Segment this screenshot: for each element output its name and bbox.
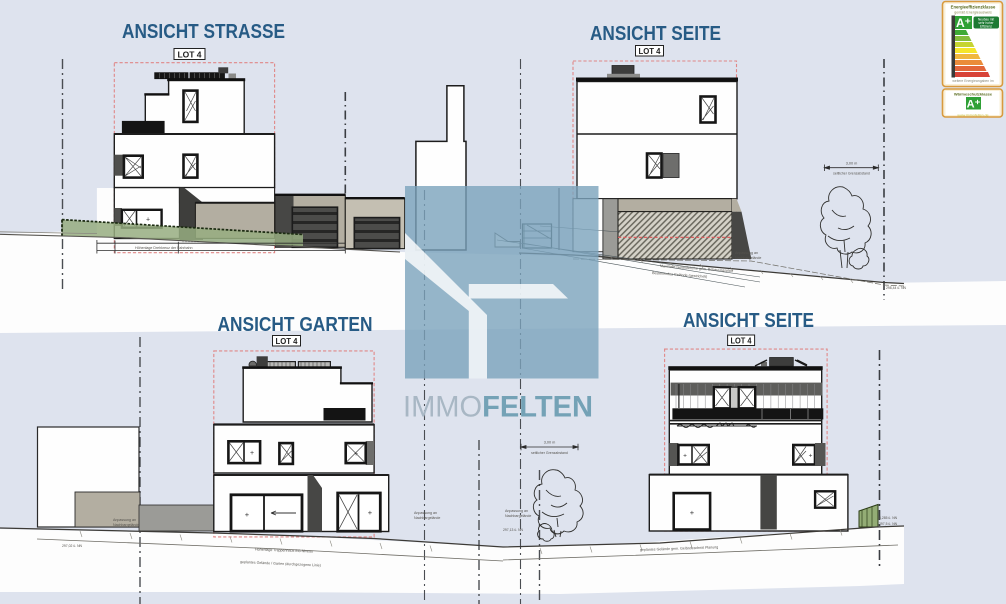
svg-text:Anpassung an: Anpassung an	[113, 518, 136, 522]
svg-text:IMMOFELTEN: IMMOFELTEN	[403, 391, 593, 424]
svg-text:Nachbargelände: Nachbargelände	[113, 523, 139, 527]
svg-text:297,02 ü. NN: 297,02 ü. NN	[62, 544, 83, 548]
svg-text:seitlicher Grenzabstand: seitlicher Grenzabstand	[833, 172, 870, 176]
svg-text:ANSICHT STRASSE: ANSICHT STRASSE	[122, 21, 285, 43]
svg-text:ANSICHT SEITE: ANSICHT SEITE	[683, 310, 814, 332]
svg-text:+: +	[146, 217, 150, 224]
svg-text:+: +	[683, 453, 687, 460]
svg-text:+: +	[245, 510, 250, 519]
svg-text:ANSICHT GARTEN: ANSICHT GARTEN	[218, 314, 373, 336]
svg-text:Höhenlage Drehkreuz der Fahrba: Höhenlage Drehkreuz der Fahrbahn	[135, 246, 193, 250]
svg-text:297,5 ü. NN: 297,5 ü. NN	[879, 522, 898, 526]
svg-text:ANSICHT SEITE: ANSICHT SEITE	[590, 23, 721, 45]
svg-text:3,00 m: 3,00 m	[544, 441, 556, 445]
svg-text:297,13 ü. NN: 297,13 ü. NN	[503, 528, 524, 532]
svg-text:A⁺: A⁺	[967, 99, 981, 111]
svg-text:Effizienz: Effizienz	[980, 25, 992, 29]
svg-text:Anpassung an: Anpassung an	[414, 511, 437, 515]
svg-text:298,44 ü. NN: 298,44 ü. NN	[886, 286, 907, 290]
svg-text:8,285 ü. NN: 8,285 ü. NN	[879, 516, 898, 520]
svg-text:Nachbargelände: Nachbargelände	[735, 256, 761, 260]
svg-text:3,00 m: 3,00 m	[846, 162, 858, 166]
svg-text:LOT 4: LOT 4	[731, 336, 753, 345]
svg-text:+: +	[809, 453, 813, 460]
svg-text:seitlicher Grenzabstand: seitlicher Grenzabstand	[531, 451, 568, 455]
svg-text:LOT 4: LOT 4	[276, 337, 299, 346]
svg-text:Nachbargelände: Nachbargelände	[505, 514, 531, 518]
svg-text:LOT 4: LOT 4	[178, 49, 202, 59]
svg-text:+: +	[354, 451, 358, 458]
svg-text:weitere Energieangaben im: weitere Energieangaben im	[952, 79, 993, 83]
svg-text:Anpassung an: Anpassung an	[505, 509, 528, 513]
svg-text:gemäß Energieausweis: gemäß Energieausweis	[954, 10, 992, 14]
svg-text:A⁺: A⁺	[956, 16, 971, 30]
svg-text:······: ······	[182, 240, 200, 246]
svg-text:Nachbargelände: Nachbargelände	[414, 516, 440, 520]
svg-text:Energieeffizienzklasse: Energieeffizienzklasse	[951, 5, 996, 10]
svg-text:+: +	[690, 508, 695, 517]
svg-text:LOT 4: LOT 4	[639, 47, 662, 56]
svg-text:+: +	[368, 508, 373, 517]
svg-text:www.immofelten.de: www.immofelten.de	[957, 114, 988, 118]
svg-text:Wärmeschutzklasse: Wärmeschutzklasse	[954, 92, 993, 97]
svg-text:+: +	[250, 450, 254, 457]
svg-text:Anpassung an: Anpassung an	[735, 251, 758, 255]
